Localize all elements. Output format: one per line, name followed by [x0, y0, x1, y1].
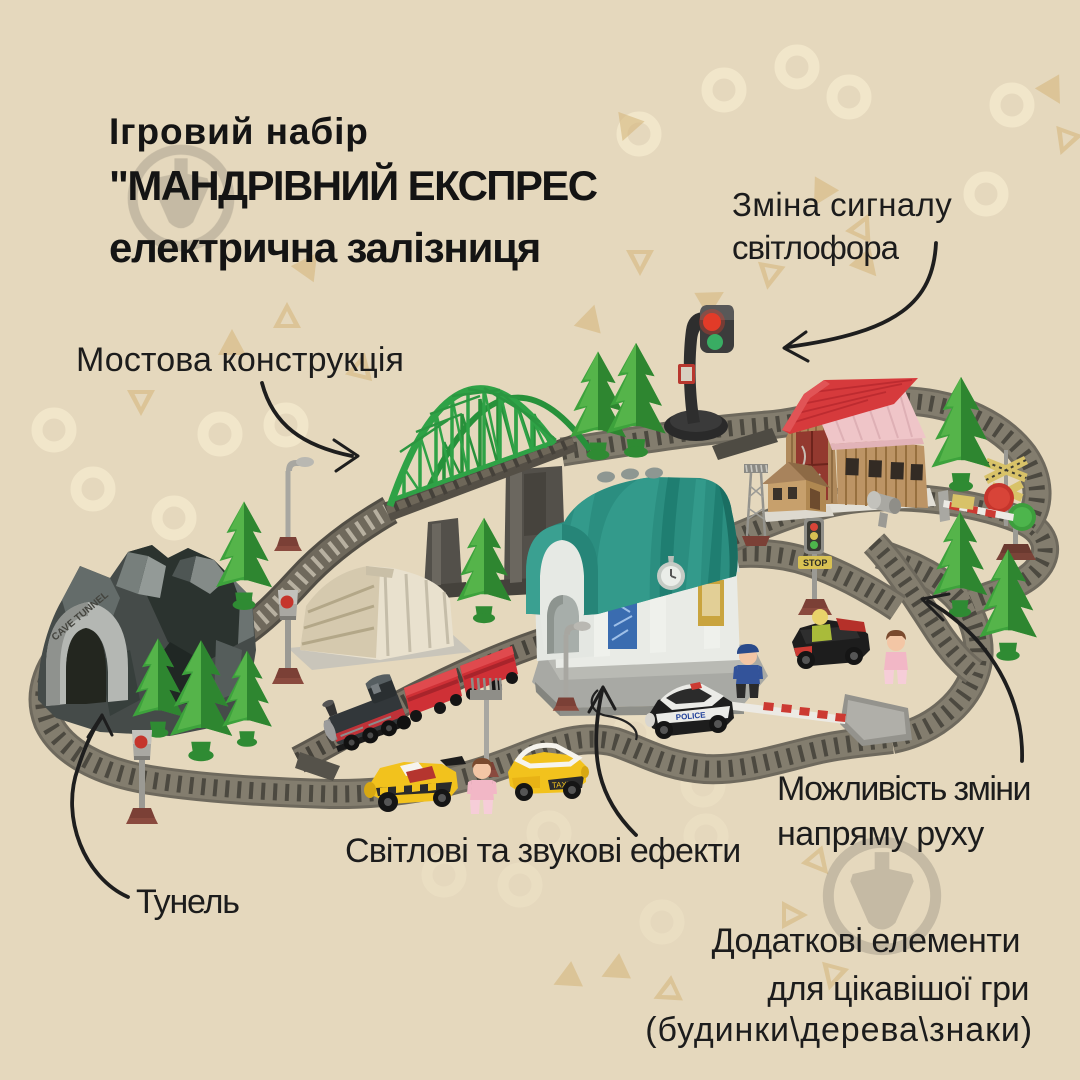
svg-text:для цікавішої гри: для цікавішої гри	[767, 970, 1029, 1008]
svg-text:Тунель: Тунель	[136, 883, 239, 921]
svg-text:STOP: STOP	[803, 558, 827, 568]
svg-text:Можливість зміни: Можливість зміни	[777, 770, 1030, 808]
svg-text:(будинки\дерева\знаки): (будинки\дерева\знаки)	[645, 1011, 1033, 1049]
svg-text:Світлові та звукові ефекти: Світлові та звукові ефекти	[345, 832, 740, 870]
svg-text:напряму руху: напряму руху	[777, 815, 984, 853]
svg-text:Додаткові елементи: Додаткові елементи	[712, 922, 1020, 960]
svg-text:світлофора: світлофора	[732, 229, 900, 266]
svg-text:Мостова конструкція: Мостова конструкція	[76, 341, 404, 379]
svg-text:Зміна сигналу: Зміна сигналу	[732, 186, 952, 223]
svg-text:"МАНДРІВНИЙ ЕКСПРЕС: "МАНДРІВНИЙ ЕКСПРЕС	[109, 161, 598, 209]
svg-text:електрична залізниця: електрична залізниця	[109, 224, 540, 271]
svg-text:Ігровий набір: Ігровий набір	[109, 111, 369, 152]
